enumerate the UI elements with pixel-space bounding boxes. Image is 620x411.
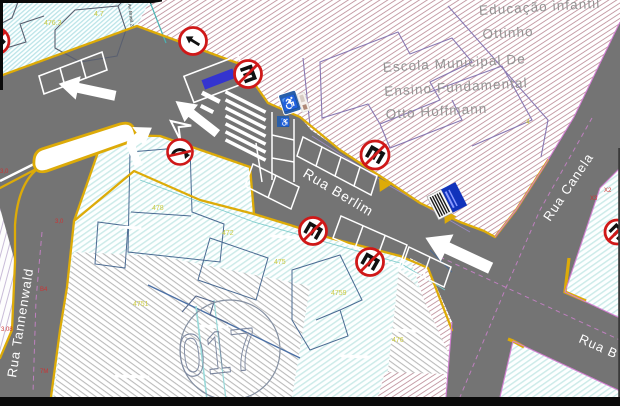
svg-text:478: 478 xyxy=(152,205,164,212)
svg-text:4751: 4751 xyxy=(133,301,149,308)
svg-text:4.7: 4.7 xyxy=(94,11,104,18)
svg-text:4: 4 xyxy=(526,119,530,126)
svg-text:476: 476 xyxy=(392,337,404,344)
svg-text:B4: B4 xyxy=(40,287,48,293)
svg-text:3,0: 3,0 xyxy=(0,169,9,175)
svg-text:475: 475 xyxy=(274,259,286,266)
svg-text:X2: X2 xyxy=(604,188,612,194)
svg-text:3,0: 3,0 xyxy=(55,219,64,225)
svg-text:X3: X3 xyxy=(590,196,598,202)
svg-text:472: 472 xyxy=(222,230,234,237)
svg-text:3,08: 3,08 xyxy=(1,327,13,333)
svg-text:476.3: 476.3 xyxy=(44,20,62,27)
svg-text:Ottinho: Ottinho xyxy=(482,24,534,42)
svg-text:♿: ♿ xyxy=(280,117,290,127)
svg-text:7M: 7M xyxy=(40,369,48,375)
svg-text:4759: 4759 xyxy=(331,290,347,297)
svg-text:017: 017 xyxy=(175,316,260,391)
